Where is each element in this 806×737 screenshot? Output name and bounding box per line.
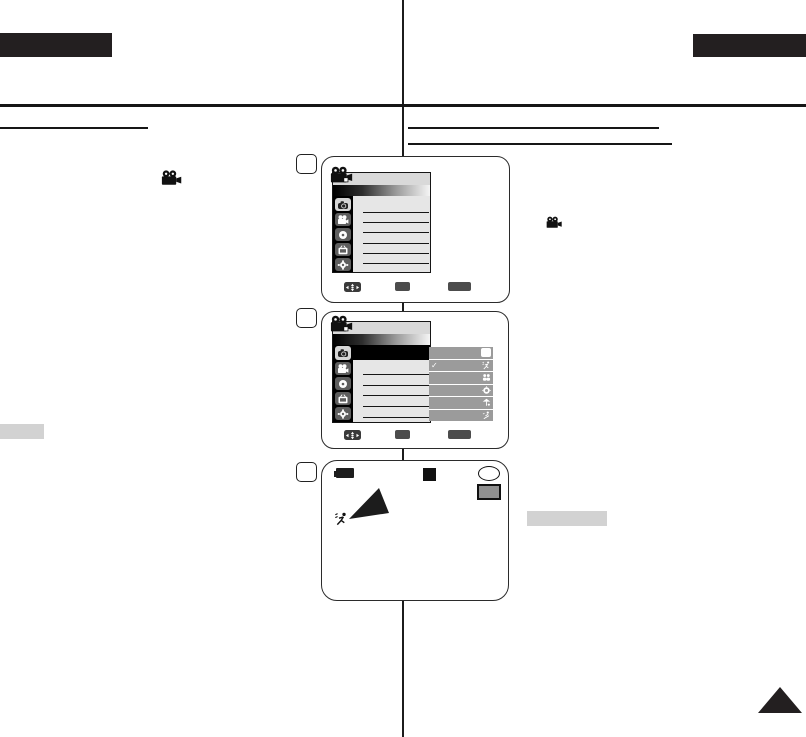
page-turn-triangle (758, 687, 802, 713)
movie-camera-icon (546, 216, 563, 229)
right-heading-underline-2 (408, 143, 672, 145)
scene-mode-submenu: ✓ (429, 347, 493, 421)
submenu-row-spotlight (429, 385, 493, 398)
auto-blank-square-icon (481, 348, 491, 357)
menu-row-line (363, 417, 429, 418)
right-highlight-bar (527, 511, 607, 526)
submenu-row-high-speed (429, 410, 493, 422)
movie-camera-icon (330, 166, 354, 184)
menu-row-line (363, 263, 429, 264)
menu-row-line (363, 385, 429, 386)
osd-screen-live-view (321, 460, 509, 601)
tv-icon (335, 392, 351, 405)
header-rule (0, 104, 806, 107)
menu-category-sidebar (333, 196, 353, 272)
spotlight-icon (482, 386, 491, 395)
disc-icon (335, 228, 351, 241)
gear-icon (335, 258, 351, 271)
submenu-row-sports: ✓ (429, 360, 493, 373)
menu-row-line (363, 243, 429, 244)
movie-camera-icon (335, 213, 351, 226)
submenu-row-auto (429, 347, 493, 360)
menu-row-line (363, 212, 429, 213)
photo-camera-icon (335, 198, 351, 211)
left-highlight-bar (0, 424, 44, 439)
exit-button-label (448, 430, 471, 439)
menu-row-line (363, 406, 429, 407)
portrait-icon (482, 373, 491, 382)
menu-selection-gradient-bar (333, 185, 430, 196)
dpad-move-icon (344, 282, 361, 292)
submenu-row-portrait (429, 372, 493, 385)
dpad-move-icon (344, 430, 361, 440)
ok-button-label (395, 430, 410, 439)
osd-screen-scene-submenu: ✓ (321, 311, 509, 449)
menu-category-sidebar (333, 345, 353, 422)
top-right-header-tab (693, 34, 806, 57)
exit-button-label (448, 282, 471, 291)
osd-screen-menu-overview (321, 156, 510, 303)
movie-camera-icon (335, 362, 351, 375)
sand-snow-icon (482, 398, 491, 407)
step-number-box-1 (296, 154, 317, 174)
tv-icon (335, 243, 351, 256)
ok-button-label (395, 282, 410, 291)
submenu-row-sand-snow (429, 397, 493, 410)
selected-menu-row (353, 345, 430, 360)
photo-camera-icon (335, 346, 351, 360)
gear-icon (335, 407, 351, 420)
scene-triangle-shape (322, 461, 508, 600)
osd-menu-panel (332, 172, 431, 273)
disc-icon (335, 377, 351, 390)
menu-row-line (363, 253, 429, 254)
menu-row-line (363, 374, 429, 375)
right-heading-underline-1 (408, 127, 659, 129)
left-heading-underline (0, 127, 148, 129)
menu-row-line (363, 232, 429, 233)
step-number-box-3 (296, 462, 317, 482)
movie-camera-icon (161, 170, 183, 186)
manual-page: ✓ (0, 0, 806, 737)
check-icon: ✓ (431, 360, 438, 371)
menu-selection-gradient-bar (333, 334, 430, 345)
movie-camera-icon (330, 315, 354, 333)
sports-runner-icon (482, 361, 491, 370)
step-number-box-2 (296, 308, 317, 328)
menu-row-line (363, 395, 429, 396)
menu-row-line (363, 222, 429, 223)
top-left-header-tab (0, 33, 112, 57)
osd-menu-panel (332, 321, 431, 423)
high-speed-icon (482, 411, 491, 420)
